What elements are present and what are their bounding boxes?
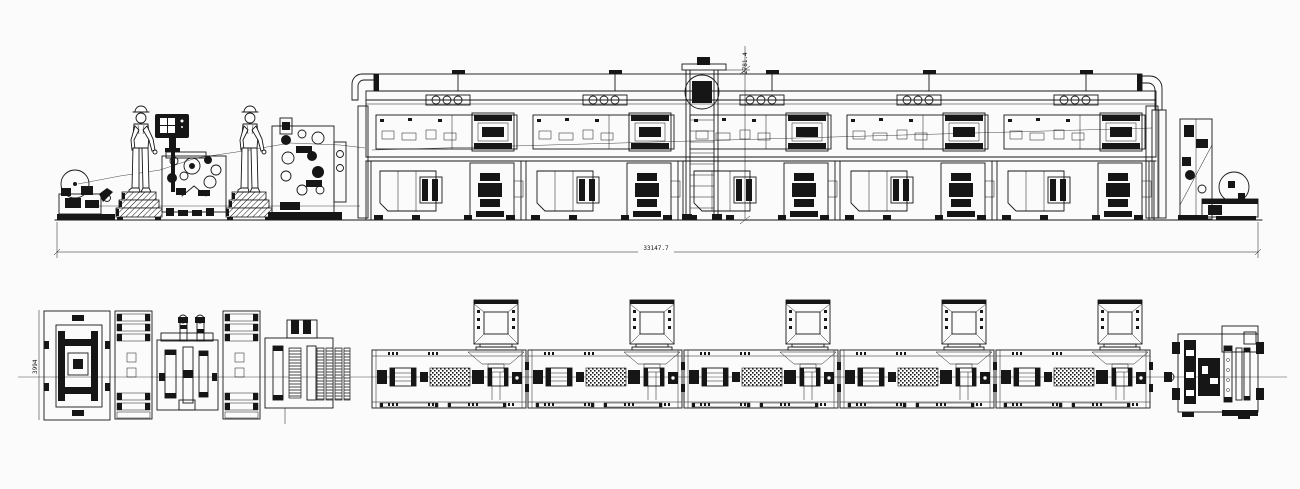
oven-module-plan-2 bbox=[528, 300, 685, 408]
operator-platform-2 bbox=[226, 192, 272, 220]
rewinder-plan bbox=[1164, 326, 1264, 419]
dryer-oven-elevation bbox=[352, 70, 1162, 220]
exhaust-tower bbox=[682, 57, 726, 220]
coater-1-plan bbox=[157, 315, 218, 410]
overall-length-label: 33147.7 bbox=[643, 245, 669, 252]
oven-elevation-modules bbox=[374, 95, 1151, 220]
platform-plan-1 bbox=[115, 311, 152, 419]
unwinder-elevation bbox=[57, 170, 115, 220]
oven-module-plan-5 bbox=[996, 300, 1153, 408]
operator-platform-1 bbox=[116, 192, 162, 220]
oven-module-plan-3 bbox=[684, 300, 841, 408]
oven-module-elevation-3 bbox=[688, 95, 837, 220]
oven-module-elevation-5 bbox=[1002, 95, 1151, 220]
coater-2-plan bbox=[265, 320, 350, 424]
platform-plan-2 bbox=[223, 311, 260, 419]
line-width-dimension: 3994 bbox=[32, 310, 39, 420]
oven-left-end bbox=[358, 106, 368, 218]
oven-module-elevation-1 bbox=[374, 95, 523, 220]
operator-2 bbox=[238, 106, 266, 192]
line-width-label: 3994 bbox=[32, 359, 39, 374]
rewinder-elevation bbox=[1152, 110, 1258, 220]
overall-height-label: 2781.4 bbox=[742, 52, 749, 74]
oven-module-elevation-4 bbox=[845, 95, 994, 220]
oven-module-plan-4 bbox=[840, 300, 997, 408]
drawing-canvas: 33147.7 2781.4 3994 bbox=[0, 0, 1300, 489]
machine-line-drawing: 33147.7 2781.4 3994 bbox=[0, 0, 1300, 489]
overall-length-dimension: 33147.7 bbox=[54, 222, 1261, 258]
web-path-line bbox=[78, 143, 365, 184]
coater-2-elevation bbox=[268, 118, 346, 220]
oven-module-elevation-2 bbox=[531, 95, 680, 220]
unwinder-plan bbox=[44, 311, 110, 420]
dryer-oven-plan bbox=[372, 300, 1153, 408]
oven-module-plan-1 bbox=[372, 300, 529, 408]
plan-view: 3994 bbox=[18, 300, 1287, 424]
operator-1 bbox=[129, 106, 157, 192]
elevation-view: 33147.7 2781.4 bbox=[54, 46, 1262, 258]
